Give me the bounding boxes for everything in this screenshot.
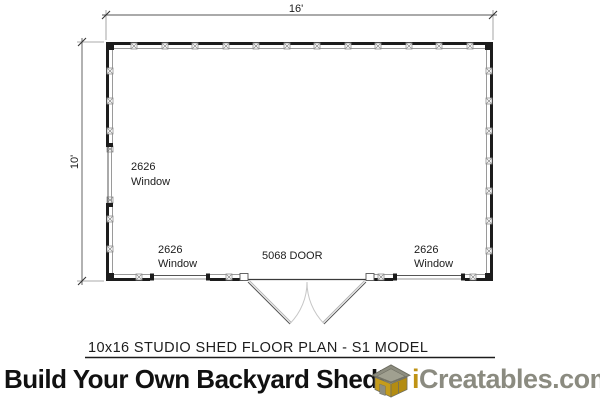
left-wall-window-type-label: Window: [131, 176, 170, 188]
bottom-left-window: [150, 274, 210, 281]
top-dimension: 16': [102, 3, 497, 40]
bottom-right-window-type-label: Window: [414, 258, 453, 270]
brand-name-prefix: i: [412, 364, 419, 394]
banner-slogan: Build Your Own Backyard Shed!: [4, 364, 386, 395]
left-wall-window-size-label: 2626: [131, 161, 155, 173]
brand-banner: Build Your Own Backyard Shed! iCreatable…: [0, 362, 600, 400]
plan-title-block: 10x16 STUDIO SHED FLOOR PLAN - S1 MODEL: [85, 340, 495, 358]
floor-plan: 16' 10': [0, 0, 600, 362]
door-label: 5068 DOOR: [262, 250, 323, 262]
bottom-right-window-size-label: 2626: [414, 244, 438, 256]
left-dimension: 10': [69, 38, 104, 285]
brand-name: iCreatables.com: [412, 364, 600, 395]
floor-plan-drawing: 16' 10': [0, 0, 600, 362]
left-dimension-label: 10': [69, 155, 81, 169]
top-dimension-label: 16': [289, 3, 303, 15]
bottom-left-window-type-label: Window: [158, 258, 197, 270]
bottom-left-window-size-label: 2626: [158, 244, 182, 256]
brand-name-rest: Creatables.com: [419, 364, 600, 394]
plan-labels: 2626 Window 2626 Window 5068 DOOR 2626 W…: [131, 161, 453, 270]
shed-3d-icon: [371, 364, 411, 398]
plan-title: 10x16 STUDIO SHED FLOOR PLAN - S1 MODEL: [88, 340, 428, 356]
double-door: [240, 274, 374, 325]
bottom-right-window: [393, 274, 465, 281]
